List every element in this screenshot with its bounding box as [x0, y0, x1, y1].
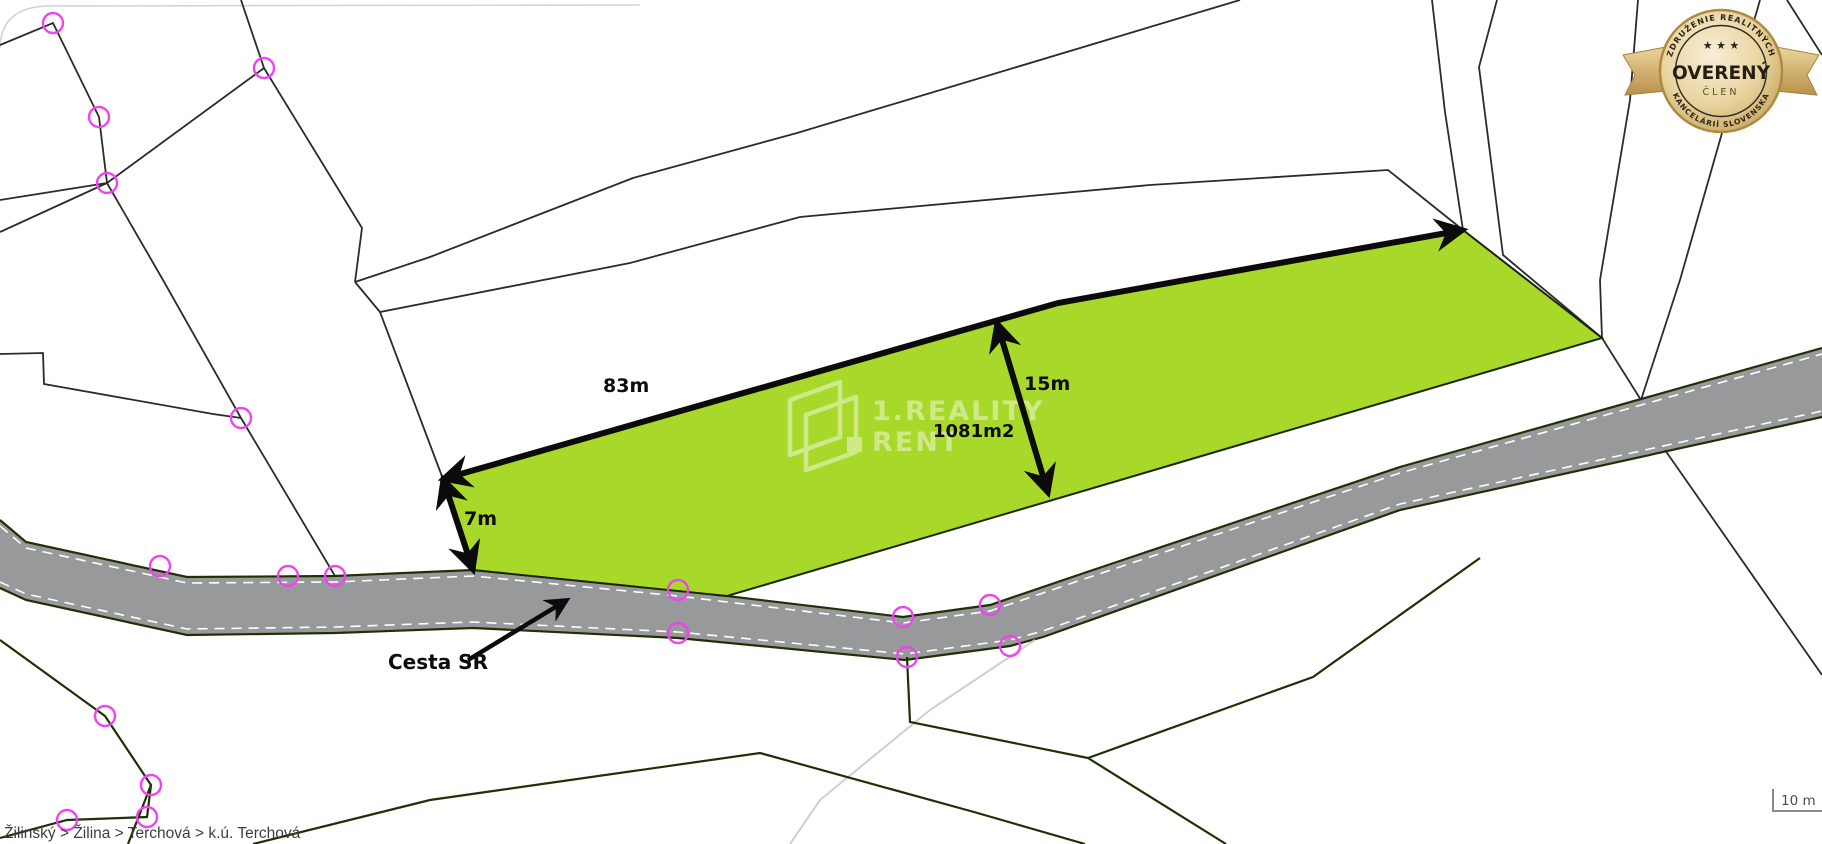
footpath — [790, 640, 1035, 844]
badge-subtitle: ČLEN — [1702, 86, 1739, 98]
label-road: Cesta SR — [388, 650, 488, 674]
verified-member-badge-icon: ZDRUŽENIE REALITNÝCH KANCELÁRIÍ SLOVENSK… — [1623, 10, 1819, 132]
cadastral-map: 1.REALITY RENT 83m 15m 7m 1081m2 Cesta S… — [0, 0, 1822, 844]
label-7m: 7m — [464, 508, 497, 530]
badge-title: OVERENÝ — [1672, 62, 1771, 84]
page-top-border — [0, 5, 640, 48]
badge-stars-icon: ★ ★ ★ — [1703, 39, 1740, 52]
scale-bar: 10 m — [1773, 789, 1822, 811]
label-83m: 83m — [603, 375, 649, 397]
scale-label: 10 m — [1781, 793, 1816, 809]
breadcrumb: Žilinský > Žilina > Terchová > k.ú. Terc… — [4, 825, 300, 843]
label-area: 1081m2 — [933, 421, 1014, 442]
label-15m: 15m — [1024, 373, 1070, 395]
